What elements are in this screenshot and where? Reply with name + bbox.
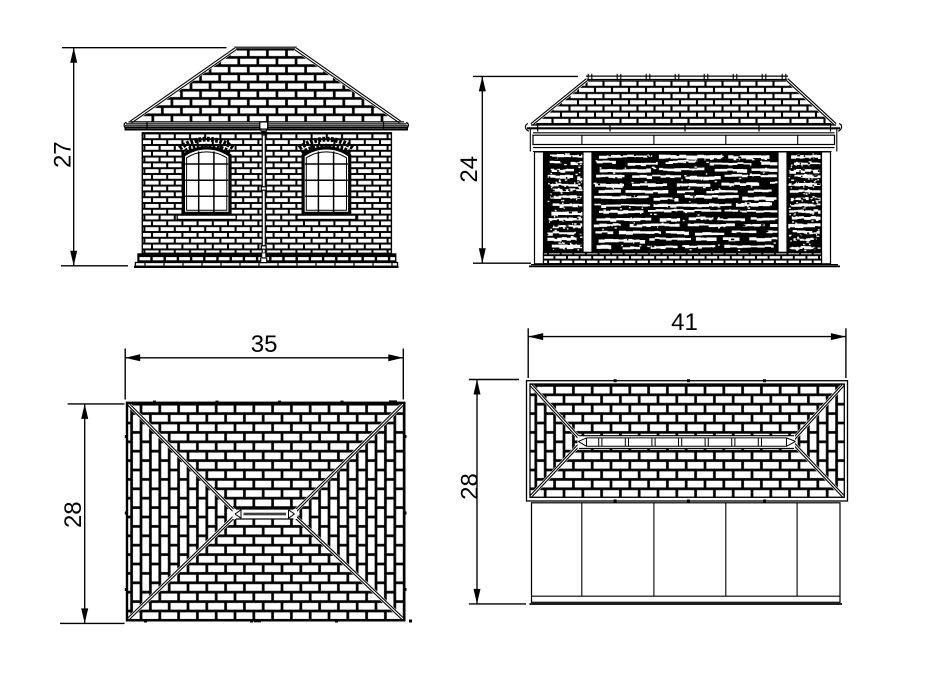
svg-text:28: 28	[456, 473, 483, 500]
svg-text:35: 35	[251, 331, 278, 358]
svg-text:28: 28	[60, 501, 87, 528]
svg-text:24: 24	[456, 156, 483, 183]
svg-text:41: 41	[671, 309, 698, 336]
svg-text:27: 27	[50, 141, 77, 168]
